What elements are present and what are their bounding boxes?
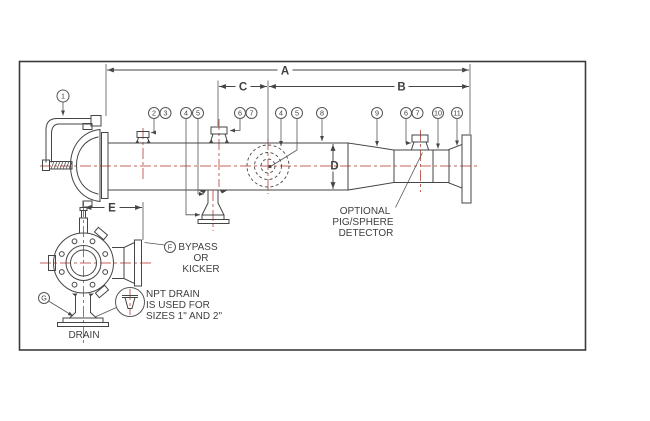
dim-b: B <box>270 82 469 94</box>
letter-f-label: F <box>168 243 173 252</box>
npt-note-line2: IS USED FOR <box>146 300 210 311</box>
leader-f <box>145 243 165 246</box>
detector-note-line1: OPTIONAL <box>340 206 391 217</box>
drawing-page: A C B D E <box>0 0 650 421</box>
drain-weld-right <box>89 294 95 297</box>
dim-a-label: A <box>281 66 289 78</box>
callout-9-label: 9 <box>375 109 379 118</box>
callout-6-right-label: 6 <box>404 109 408 118</box>
dim-c-label: C <box>239 82 247 94</box>
npt-note-line1: NPT DRAIN <box>146 289 200 300</box>
callout-3-label: 3 <box>164 109 168 118</box>
flange-hub-bottom <box>449 183 462 188</box>
drain-flange-lip <box>58 323 109 327</box>
reducer-top-taper <box>348 143 394 150</box>
callout-11: 11 <box>452 108 463 119</box>
callout-4-left: 4 <box>181 108 192 119</box>
callout-leaders <box>63 102 457 215</box>
bypass-note-line1: BYPASS <box>178 242 218 253</box>
detector-note-line2: PIG/SPHERE <box>332 217 393 228</box>
end-flange <box>449 135 471 203</box>
callout-3: 3 <box>160 108 171 119</box>
callout-2-label: 2 <box>152 109 156 118</box>
dim-b-label: B <box>397 82 405 94</box>
leader-g <box>49 301 74 316</box>
vent-weld-right <box>147 140 151 143</box>
letter-g-label: G <box>41 294 47 303</box>
callout-5-circle-label: 5 <box>295 109 299 118</box>
reducer-bottom-taper <box>348 183 394 191</box>
dim-d-label: D <box>330 161 338 173</box>
bypass-note-line2: OR <box>194 253 209 264</box>
callout-7-mid: 7 <box>246 108 257 119</box>
npt-note-line3: SIZES 1" AND 2" <box>146 311 222 322</box>
callout-5-left-label: 5 <box>196 109 200 118</box>
pig-launcher-dimensional-drawing: A C B D E <box>0 0 650 421</box>
callout-7-mid-label: 7 <box>250 109 254 118</box>
callout-6-mid: 6 <box>235 108 246 119</box>
callout-5-circle: 5 <box>292 108 303 119</box>
callout-4-left-label: 4 <box>184 109 188 118</box>
callout-5-left: 5 <box>193 108 204 119</box>
callout-4-circle: 4 <box>276 108 287 119</box>
drain-weld-left <box>72 294 78 297</box>
dim-a: A <box>106 64 470 134</box>
leader-6-7-mid <box>230 119 240 131</box>
callout-10: 10 <box>433 108 444 119</box>
dimensions: A C B D E <box>84 64 471 240</box>
callout-1-label: 1 <box>61 92 65 101</box>
flange-plate <box>462 135 471 203</box>
callout-8-label: 8 <box>320 109 324 118</box>
letter-f-group: F BYPASS OR KICKER <box>145 242 220 276</box>
drain-label: DRAIN <box>68 330 99 341</box>
npt-note: NPT DRAIN IS USED FOR SIZES 1" AND 2" <box>146 289 222 322</box>
endview-lug-upper <box>94 227 107 239</box>
dim-d: D <box>330 145 338 189</box>
bypass-note-line3: KICKER <box>182 264 219 275</box>
leader-5-dot <box>268 165 271 168</box>
bottom-weld-left <box>199 191 206 194</box>
detail-leader <box>95 308 117 318</box>
callout-11-label: 11 <box>453 109 460 118</box>
leader-5-left <box>198 119 204 194</box>
callout-7-right-label: 7 <box>416 109 420 118</box>
callout-2: 2 <box>149 108 160 119</box>
callout-6-mid-label: 6 <box>238 109 242 118</box>
detector-note: OPTIONAL PIG/SPHERE DETECTOR <box>332 206 393 239</box>
vent-weld-left <box>136 140 140 143</box>
bottom-weld-right <box>220 191 227 194</box>
callout-9: 9 <box>372 108 383 119</box>
threaded-rod-hatch <box>51 162 72 170</box>
callout-4-circle-label: 4 <box>279 109 283 118</box>
closure-bottom-tab <box>83 201 92 207</box>
callout-6-right: 6 <box>401 108 412 119</box>
callout-8: 8 <box>317 108 328 119</box>
flange-hub-top <box>449 145 462 150</box>
closure-assembly <box>43 116 109 208</box>
callout-1: 1 <box>57 90 69 102</box>
leader-6-7-right <box>406 119 411 143</box>
end-view <box>40 206 152 344</box>
leader-2-3 <box>151 119 154 133</box>
callout-7-right: 7 <box>412 108 423 119</box>
callout-10-label: 10 <box>434 109 442 118</box>
drawing-border <box>20 62 586 351</box>
dim-e-label: E <box>108 203 116 215</box>
detector-note-line3: DETECTOR <box>339 228 394 239</box>
callout-balloons: 1 2 3 4 5 6 7 4 5 8 9 6 7 10 11 <box>57 90 463 119</box>
endview-lug-lower <box>95 285 108 297</box>
davit-arm-outer <box>46 119 91 163</box>
leader-detector-note <box>396 153 423 208</box>
npt-detail <box>95 288 145 318</box>
